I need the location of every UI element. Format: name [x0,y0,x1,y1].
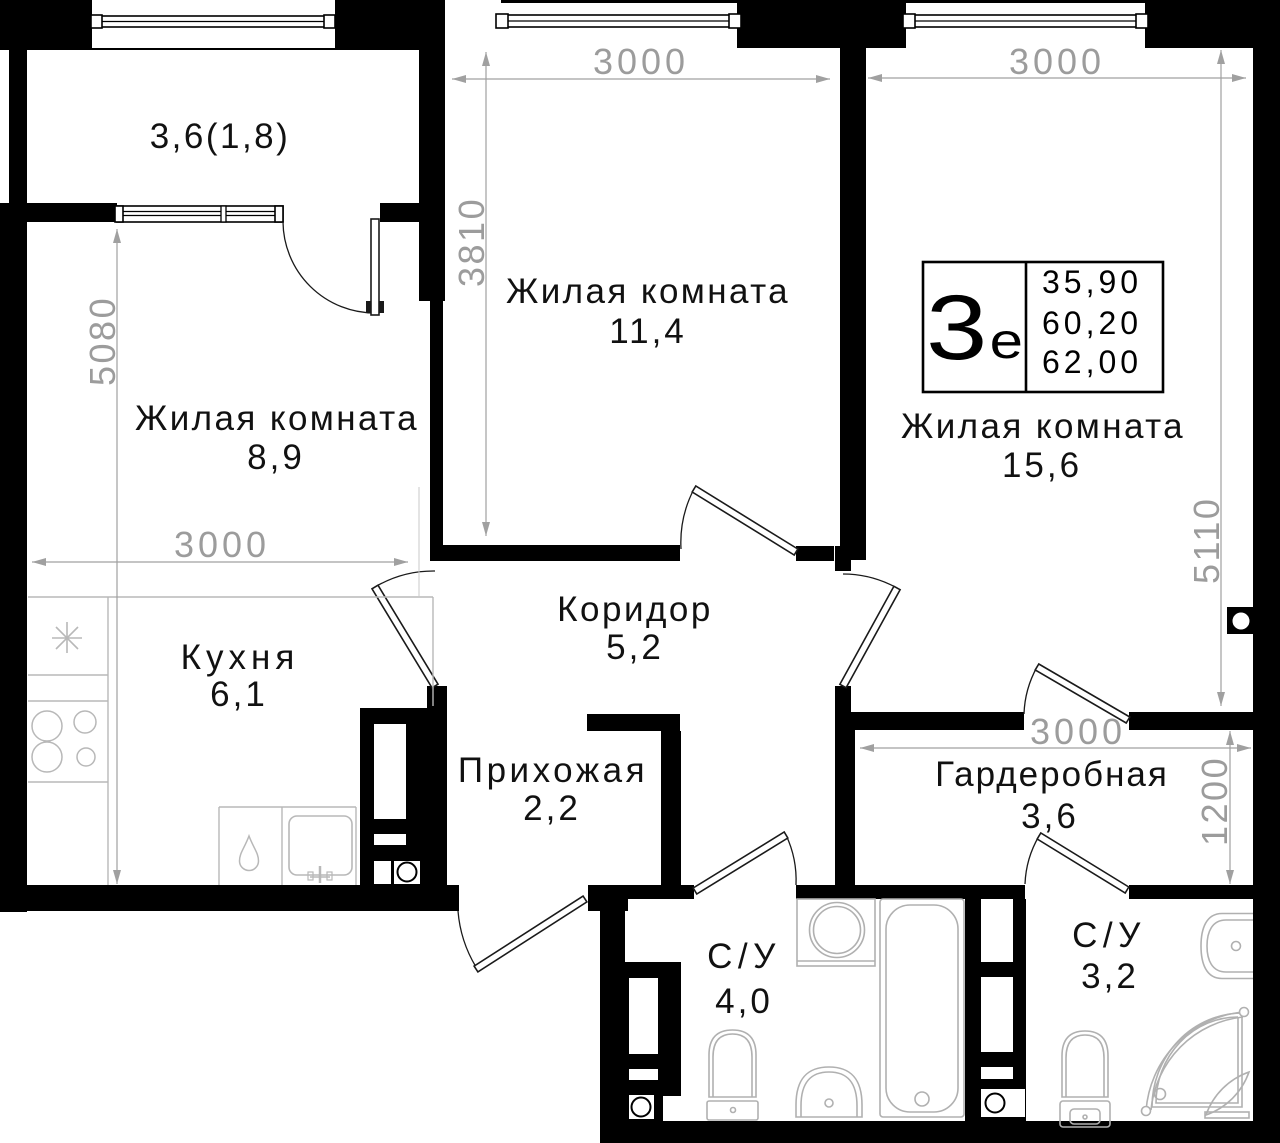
svg-text:4,0: 4,0 [715,982,773,1021]
svg-text:С/У: С/У [707,937,781,976]
svg-text:6,1: 6,1 [210,675,268,714]
svg-text:Прихожая: Прихожая [458,751,648,790]
svg-text:11,4: 11,4 [609,312,687,351]
svg-text:35,90: 35,90 [1042,264,1142,300]
svg-text:3,2: 3,2 [1081,957,1139,996]
svg-text:3810: 3810 [451,197,492,287]
svg-text:8,9: 8,9 [247,438,305,477]
svg-text:Жилая комната: Жилая комната [506,272,790,311]
svg-text:15,6: 15,6 [1002,446,1082,485]
svg-text:Гардеробная: Гардеробная [935,755,1169,794]
svg-text:Жилая комната: Жилая комната [901,407,1185,446]
svg-text:5080: 5080 [82,296,123,386]
svg-text:62,00: 62,00 [1042,344,1142,380]
svg-text:Жилая комната: Жилая комната [135,399,419,438]
svg-text:С/У: С/У [1072,916,1146,955]
svg-text:2,2: 2,2 [523,789,581,828]
svg-text:5110: 5110 [1186,497,1227,584]
svg-text:Коридор: Коридор [557,590,713,629]
svg-text:Кухня: Кухня [181,638,300,677]
svg-text:3,6(1,8): 3,6(1,8) [150,117,291,156]
svg-text:3000: 3000 [593,41,689,82]
svg-text:3000: 3000 [1009,41,1105,82]
svg-text:5,2: 5,2 [606,628,664,667]
svg-text:60,20: 60,20 [1042,305,1142,341]
svg-text:3000: 3000 [1030,711,1126,752]
svg-text:3,6: 3,6 [1021,797,1079,836]
svg-text:3000: 3000 [174,524,270,565]
svg-text:3: 3 [926,276,987,379]
svg-text:е: е [990,313,1023,369]
svg-text:1200: 1200 [1194,756,1235,846]
